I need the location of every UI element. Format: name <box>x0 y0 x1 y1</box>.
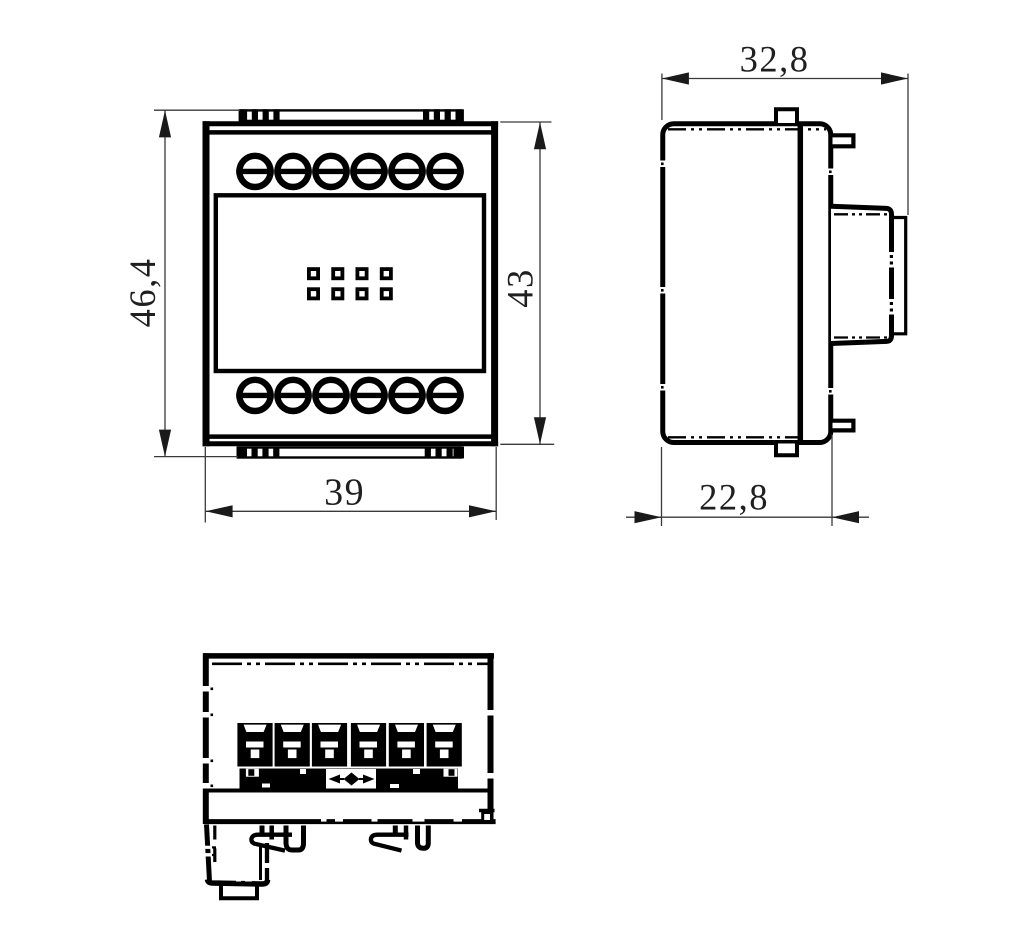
svg-text:39: 39 <box>324 472 365 514</box>
svg-text:22,8: 22,8 <box>699 477 769 518</box>
svg-text:46,4: 46,4 <box>122 257 163 327</box>
svg-text:32,8: 32,8 <box>740 39 810 80</box>
svg-text:43: 43 <box>500 268 541 308</box>
